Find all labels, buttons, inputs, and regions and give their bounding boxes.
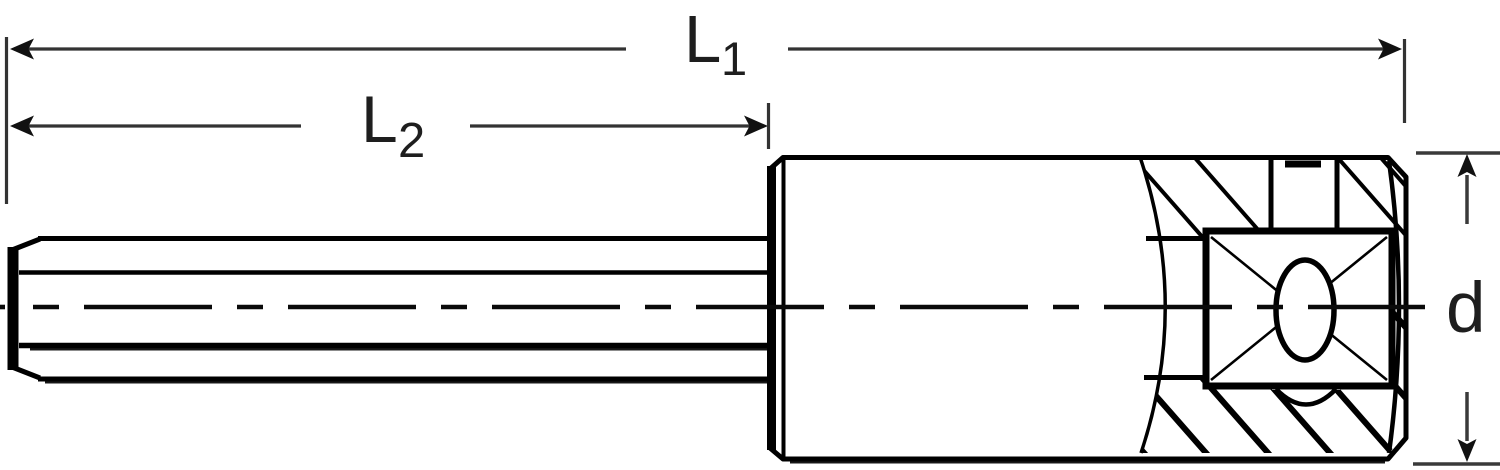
svg-text:2: 2 [398, 114, 425, 168]
svg-text:d: d [1446, 269, 1486, 348]
svg-text:L: L [361, 82, 398, 156]
svg-text:1: 1 [721, 32, 747, 85]
svg-text:L: L [684, 2, 721, 77]
